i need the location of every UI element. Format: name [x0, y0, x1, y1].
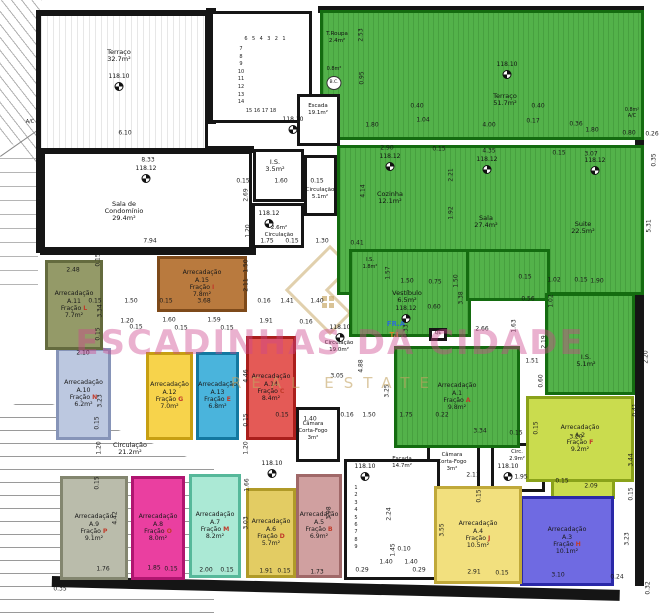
level-marker: 118.12 [136, 166, 157, 183]
room-fraction-line: Fração G [156, 396, 184, 403]
watermark-title: ESCADINHAS DA CIDADE [75, 323, 584, 363]
dimension-label: 3.34 [97, 304, 104, 317]
dimension-label: 1.73 [310, 569, 323, 576]
dimension-label: 0.15 [552, 150, 565, 157]
room-fraction-line: Fração N [70, 394, 98, 401]
room-id: A.1 [452, 390, 462, 397]
room-title: Arrecadação [64, 379, 103, 386]
fraction-word: Fração [156, 396, 176, 403]
room-id: A.13 [211, 389, 225, 396]
fraccao-terrace-area [320, 10, 644, 140]
circ-51-label-line: Circulação [306, 187, 335, 194]
vestibulo-label-line: 6.5m² [392, 297, 422, 304]
dimension-label: 0.16 [340, 412, 353, 419]
stair-step-number: 18 [270, 108, 276, 114]
level-marker-icon [142, 174, 151, 183]
camara-right-label-line: Corta-Fogo [437, 459, 466, 466]
room-fraction-line: Fração O [144, 528, 172, 535]
level-marker-icon [289, 125, 298, 134]
is-18-label-line: 1.8m² [363, 264, 378, 271]
troupa-label-line: T.Roupa [326, 31, 348, 38]
dimension-label: 0.41 [632, 403, 639, 416]
bc-badge-line: B.C. [329, 80, 338, 86]
stair-step-number: 8 [354, 537, 357, 543]
dimension-label: 0.35 [53, 586, 66, 593]
escada-top-label-line: 19.1m² [308, 110, 328, 117]
dimension-label: 2.90 [380, 145, 393, 152]
dimension-label: 1.50 [124, 298, 137, 305]
dimension-label: 0.15 [509, 430, 522, 437]
room-fraction-line: Fração P [81, 528, 108, 535]
fraction-letter: H [576, 541, 581, 548]
dimension-label: 0.60 [538, 374, 545, 387]
room-title: Arrecadação [459, 520, 498, 527]
escada-bottom-label-line: Escada [392, 456, 412, 463]
circ-29-label: Circ.2.9m² [509, 449, 525, 463]
room-id: A.10 [77, 387, 91, 394]
dimension-label: 1.20 [245, 224, 252, 237]
level-marker-icon [386, 162, 395, 171]
stair-step-number: 15 [246, 108, 252, 114]
level-marker-icon [503, 70, 512, 79]
room-a7: ArrecadaçãoA.7Fração M8.2m² [189, 474, 241, 578]
dimension-label: 1.90 [590, 278, 603, 285]
room-fraction-line: Fração J [466, 535, 491, 542]
room-area: 7.0m² [160, 403, 178, 410]
bc-area-label: 0.8m² [327, 66, 342, 73]
dimension-label: 3.44 [628, 453, 635, 466]
sala-a-label-line: 27.4m² [474, 222, 497, 229]
room-area: 8.0m² [149, 535, 167, 542]
stair-step-number: 14 [238, 99, 244, 105]
vestibulo-label: Vestíbulo6.5m² [392, 290, 422, 304]
room-id: A.8 [153, 521, 163, 528]
terrace-left-label: Terraço32.7m² [107, 49, 131, 63]
dimension-label: 3.38 [458, 291, 465, 304]
room-title: Arrecadação [150, 381, 189, 388]
dimension-label: 1.50 [243, 259, 250, 272]
room-fraction-line: Fração L [61, 305, 87, 312]
dimension-label: 1.02 [547, 277, 560, 284]
ac-right-label-line: A/C [625, 114, 639, 120]
room-fraction-line: Fração E [204, 396, 231, 403]
dimension-label: 1.75 [260, 238, 273, 245]
dimension-label: 0.15 [159, 298, 172, 305]
dimension-label: 0.41 [350, 240, 363, 247]
fraction-letter: M [223, 526, 229, 533]
ac-left-label: A/C [26, 119, 35, 126]
dimension-label: 2.69 [243, 188, 250, 201]
dimension-label: 1.50 [362, 412, 375, 419]
circ-29-label-line: 2.9m² [509, 456, 525, 463]
dimension-label: 0.15 [555, 478, 568, 485]
dimension-label: 4.00 [482, 122, 495, 129]
is-35-room [253, 149, 304, 202]
dimension-label: 0.15 [243, 413, 250, 426]
level-marker-icon [483, 165, 492, 174]
room-area: 8.2m² [206, 533, 224, 540]
dimension-label: 0.16 [257, 298, 270, 305]
level-marker: 118.12 [380, 154, 401, 171]
room-area: 6.9m² [310, 533, 328, 540]
level-value: 118.10 [498, 464, 519, 471]
camara-right-label-line: 3m² [437, 466, 466, 473]
dimension-label: 1.75 [399, 412, 412, 419]
dimension-label: 1.02 [548, 294, 555, 307]
level-marker: 118.10 [283, 117, 304, 134]
stair-step-number: 5 [252, 36, 255, 42]
stair-step-number: 10 [238, 69, 244, 75]
terrace-right-label: Terraço51.7m² [493, 93, 517, 107]
room-id: A.9 [89, 521, 99, 528]
dimension-label: 0.24 [610, 574, 623, 581]
room-title: Arrecadação [139, 513, 178, 520]
dimension-label: 0.15 [94, 476, 101, 489]
level-marker-icon [265, 219, 274, 228]
dimension-label: 3.23 [624, 532, 631, 545]
dimension-label: 2.21 [448, 168, 455, 181]
room-title: Arrecadação [561, 424, 600, 431]
dimension-label: 1.40 [404, 559, 417, 566]
dimension-label: 1.41 [280, 298, 293, 305]
stair-step-number: 17 [262, 108, 268, 114]
level-value: 118.12 [477, 157, 498, 164]
dimension-label: 2.24 [386, 507, 393, 520]
circ-29-label-line: Circ. [509, 449, 525, 456]
dimension-label: 4.14 [360, 184, 367, 197]
fraction-letter: O [167, 528, 172, 535]
level-value: 118.12 [380, 154, 401, 161]
level-marker: 118.12 [477, 157, 498, 174]
fraction-word: Fração [305, 526, 325, 533]
dimension-label: 1.91 [259, 568, 272, 575]
watermark-subtitle: REAL ESTATE [231, 374, 439, 392]
room-a5: ArrecadaçãoA.5Fração B6.9m² [296, 474, 342, 578]
bc-badge: B.C. [326, 76, 341, 90]
dimension-label: 0.15 [476, 489, 483, 502]
dimension-label: 0.17 [526, 118, 539, 125]
terrace-right-label-line: 51.7m² [493, 100, 517, 107]
stair-step-number: 7 [239, 46, 242, 52]
dimension-label: 0.15 [94, 416, 101, 429]
stair-step-number: 7 [354, 529, 357, 535]
dimension-label: 8.33 [141, 157, 154, 164]
dimension-label: 1.40 [310, 298, 323, 305]
room-a9: ArrecadaçãoA.9Fração P9.1m² [60, 476, 128, 580]
dimension-label: 0.15 [310, 178, 323, 185]
troupa-label: T.Roupa2.4m² [326, 31, 348, 45]
circ-51-room [304, 155, 337, 216]
stair-step-number: 5 [354, 515, 357, 521]
dimension-label: 2.11 [466, 472, 479, 479]
dimension-label: 3.03 [243, 516, 250, 529]
fraction-letter: F [589, 439, 593, 446]
room-title: Arrecadação [75, 513, 114, 520]
level-marker-icon [115, 82, 124, 91]
stair-step-number: 2 [354, 492, 357, 498]
stair-step-number: 2 [275, 36, 278, 42]
camara-left-label-line: Corta-Fogo [298, 428, 327, 435]
room-area: 10.5m² [467, 542, 489, 549]
room-title: Arrecadação [196, 511, 235, 518]
dimension-label: 1.50 [400, 278, 413, 285]
level-marker: 118.12 [259, 211, 280, 228]
dimension-label: 1.50 [453, 274, 460, 287]
dimension-label: 1.80 [365, 122, 378, 129]
dimension-label: 0.35 [651, 153, 658, 166]
dimension-label: 0.15 [533, 421, 540, 434]
ac-right-label: 0.8m²A/C [625, 108, 639, 121]
stair-step-number: 8 [239, 54, 242, 60]
sala-cond-label-line: 29.4m² [105, 215, 144, 222]
stair-step-number: 12 [238, 84, 244, 90]
dimension-label: 1.57 [385, 266, 392, 279]
room-id: A.7 [210, 519, 220, 526]
stair-step-number: 13 [238, 92, 244, 98]
cozinha-label-line: 12.1m² [377, 198, 403, 205]
room-id: A.4 [473, 528, 483, 535]
room-a3: ArrecadaçãoA.3Fração H10.1m² [520, 496, 614, 586]
room-area: 5.7m² [262, 540, 280, 547]
level-value: 118.10 [109, 74, 130, 81]
level-marker: 118.12 [585, 158, 606, 175]
room-title: Arrecadação [300, 511, 339, 518]
room-fraction-line: Fração D [257, 533, 285, 540]
dimension-label: 0.29 [355, 567, 368, 574]
dimension-label: 3.34 [473, 428, 486, 435]
dimension-label: 0.29 [412, 567, 425, 574]
dimension-label: 1.92 [448, 206, 455, 219]
dimension-label: 0.15 [495, 570, 508, 577]
level-value: 118.10 [283, 117, 304, 124]
fraccao-hall-area [466, 249, 550, 301]
level-marker-icon [591, 166, 600, 175]
fraction-word: Fração [61, 305, 81, 312]
troupa-label-line: 2.4m² [326, 38, 348, 45]
dimension-label: 3.68 [197, 298, 210, 305]
fraction-word: Fração [70, 394, 90, 401]
dimension-label: 2.20 [643, 350, 650, 363]
circ-212-label-line: 21.2m² [113, 449, 147, 456]
dimension-label: 0.15 [628, 487, 635, 500]
dimension-label: 1.40 [379, 559, 392, 566]
room-title: Arrecadação [252, 518, 291, 525]
level-marker-icon [268, 469, 277, 478]
room-a13: ArrecadaçãoA.13Fração E6.8m² [196, 352, 239, 440]
stair-step-number: 3 [267, 36, 270, 42]
dimension-label: 1.40 [303, 416, 316, 423]
stair-step-number: 3 [354, 500, 357, 506]
stair-step-number: 9 [354, 544, 357, 550]
dimension-label: 2.53 [358, 28, 365, 41]
room-id: A.3 [562, 534, 572, 541]
room-area: 10.1m² [556, 548, 578, 555]
level-value: 118.10 [355, 464, 376, 471]
room-fraction-line: Fração I [190, 284, 215, 291]
fraction-word: Fração [204, 396, 224, 403]
dimension-label: 0.15 [285, 238, 298, 245]
fraction-letter: G [178, 396, 183, 403]
room-id: A.11 [67, 298, 81, 305]
fraction-letter: D [280, 533, 285, 540]
dimension-label: 0.80 [622, 130, 635, 137]
dimension-label: 1.30 [315, 238, 328, 245]
dimension-label: 4.42 [112, 511, 119, 524]
level-marker-icon [402, 314, 411, 323]
fraction-letter: L [83, 305, 87, 312]
stair-step-number: 11 [238, 76, 244, 82]
suite-label-line: 22.5m² [571, 228, 594, 235]
sala-cond-label: Sala deCondomínio29.4m² [105, 201, 144, 223]
dimension-label: 0.60 [427, 304, 440, 311]
dimension-label: 3.55 [439, 523, 446, 536]
camara-left-label: CâmaraCorta-Fogo3m² [298, 421, 327, 441]
dimension-label: 3.30 [37, 195, 44, 208]
circ-51-label-line: 5.1m² [306, 194, 335, 201]
dimension-label: 0.22 [435, 412, 448, 419]
room-fraction-line: Fração H [553, 541, 581, 548]
level-marker: 118.10 [497, 62, 518, 79]
dimension-label: 2.91 [467, 569, 480, 576]
room-id: A.12 [163, 389, 177, 396]
fraction-word: Fração [553, 541, 573, 548]
dimension-label: 1.20 [96, 441, 103, 454]
dimension-label: 3.98 [326, 506, 333, 519]
dimension-label: 0.15 [220, 567, 233, 574]
stair-step-number: 4 [260, 36, 263, 42]
is-18-label: I.S.1.8m² [363, 257, 378, 270]
room-title: Arrecadação [55, 290, 94, 297]
fraction-word: Fração [201, 526, 221, 533]
dimension-label: 1.20 [243, 441, 250, 454]
dimension-label: 0.36 [569, 121, 582, 128]
ac-left-label-line: A/C [26, 119, 35, 126]
dimension-label: 0.15 [432, 146, 445, 153]
room-fraction-line: Fração B [305, 526, 332, 533]
room-a12: ArrecadaçãoA.12Fração G7.0m² [146, 352, 193, 440]
dimension-label: 0.15 [164, 566, 177, 573]
level-marker-icon [361, 472, 370, 481]
room-id: A.6 [266, 526, 276, 533]
fraction-letter: B [328, 526, 333, 533]
room-area: 8.4m² [262, 395, 280, 402]
dimension-label: 0.15 [275, 412, 288, 419]
room-area: 9.2m² [571, 446, 589, 453]
fraction-word: Fração [257, 533, 277, 540]
fraction-word: Fração [466, 535, 486, 542]
dimension-label: 1.04 [416, 117, 429, 124]
sala-a-label: Sala27.4m² [474, 215, 497, 229]
dimension-label: 3.20 [569, 434, 582, 441]
room-fraction-line: Fração M [201, 526, 230, 533]
room-fraction-line: Fração A [443, 397, 470, 404]
dimension-label: 3.23 [97, 394, 104, 407]
room-area: 9.8m² [448, 404, 466, 411]
level-marker: 118.12 [396, 306, 417, 323]
escada-bottom-label-line: 14.7m² [392, 463, 412, 470]
dimension-label: 0.26 [645, 131, 658, 138]
level-value: 118.10 [262, 461, 283, 468]
escada-bottom-label: Escada14.7m² [392, 456, 412, 470]
exterior-steps-left [0, 150, 38, 285]
dimension-label: 2.11 [243, 278, 250, 291]
fraction-word: Fração [443, 397, 463, 404]
stair-step-number: 4 [354, 507, 357, 513]
room-id: A.5 [314, 519, 324, 526]
room-title: Arrecadação [438, 382, 477, 389]
room-id: A.15 [195, 277, 209, 284]
escada-top-label: Escada19.1m² [308, 103, 328, 117]
dimension-label: 2.09 [584, 483, 597, 490]
camara-left-label-line: 3m² [298, 435, 327, 442]
dimension-label: 1.45 [390, 543, 397, 556]
level-value: 118.12 [259, 211, 280, 218]
dimension-label: 0.32 [645, 581, 652, 594]
dimension-label: 0.15 [277, 568, 290, 575]
level-value: 118.12 [136, 166, 157, 173]
dimension-label: 1.60 [274, 178, 287, 185]
fraction-letter: P [103, 528, 108, 535]
escada-top-label-line: Escada [308, 103, 328, 110]
dimension-label: 0.95 [359, 71, 366, 84]
dimension-label: 0.15 [95, 253, 102, 266]
dimension-label: 0.75 [428, 279, 441, 286]
stair-step-number: 16 [254, 108, 260, 114]
dimension-label: 6.10 [118, 130, 131, 137]
camara-right-label: CâmaraCorta-Fogo3m² [437, 452, 466, 472]
dimension-label: 2.48 [66, 267, 79, 274]
stair-step-number: 9 [239, 61, 242, 67]
level-marker: 118.10 [498, 464, 519, 481]
dimension-label: 1.76 [96, 566, 109, 573]
stair-step-number: 1 [282, 36, 285, 42]
room-area: 9.1m² [85, 535, 103, 542]
room-area: 6.2m² [74, 401, 92, 408]
level-value: 118.10 [497, 62, 518, 69]
level-marker: 118.10 [262, 461, 283, 478]
fraction-letter: I [212, 284, 214, 291]
fraction-letter: A [466, 397, 471, 404]
dimension-label: 5.31 [646, 219, 653, 232]
room-area: 7.7m² [65, 312, 83, 319]
fraction-word: Fração [190, 284, 210, 291]
fraction-letter: E [227, 396, 231, 403]
room-a6: ArrecadaçãoA.6Fração D5.7m² [246, 488, 296, 578]
dimension-label: 0.56 [521, 296, 534, 303]
dimension-label: 0.40 [410, 103, 423, 110]
dimension-label: 1.80 [585, 127, 598, 134]
camara-right-label-line: Câmara [437, 452, 466, 459]
cozinha-label: Cozinha12.1m² [377, 191, 403, 205]
dimension-label: 2.00 [199, 567, 212, 574]
is-35-label-line: 3.5m² [265, 166, 284, 173]
floor-plan: FRACÇÃO A ESCADINHAS DA CIDADE REAL ESTA… [0, 0, 660, 613]
bc-area-label-line: 0.8m² [327, 66, 342, 73]
dimension-label: 3.10 [551, 572, 564, 579]
terrace-left-label-line: 32.7m² [107, 56, 131, 63]
suite-label: Suite22.5m² [571, 221, 594, 235]
dimension-label: 0.15 [574, 277, 587, 284]
level-marker: 118.10 [109, 74, 130, 91]
fraction-word: Fração [144, 528, 164, 535]
room-title: Arrecadação [183, 269, 222, 276]
dimension-label: 4.35 [482, 148, 495, 155]
dimension-label: 1.85 [147, 565, 160, 572]
level-marker: 118.10 [355, 464, 376, 481]
dimension-label: 1.66 [244, 478, 251, 491]
dimension-label: 7.94 [143, 238, 156, 245]
stair-step-number: 6 [354, 522, 357, 528]
